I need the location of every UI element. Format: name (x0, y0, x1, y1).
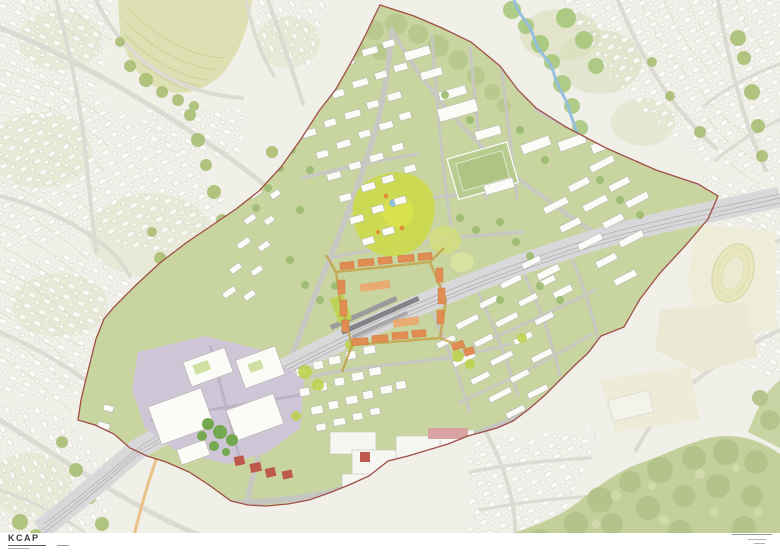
footer-bar: KCAP (0, 533, 780, 552)
scale-micro-text-2 (754, 543, 765, 544)
logo-rule (8, 545, 46, 546)
kcap-logo: KCAP (8, 534, 40, 543)
masterplan-page: KCAP (0, 0, 780, 552)
logo-micro-text (8, 548, 30, 549)
scale-bar (732, 534, 772, 535)
footer-micro-mark (57, 545, 69, 546)
hospital-pink-wing (428, 428, 468, 439)
scale-micro-text-1 (748, 539, 766, 540)
masterplan-map-canvas (0, 0, 780, 552)
